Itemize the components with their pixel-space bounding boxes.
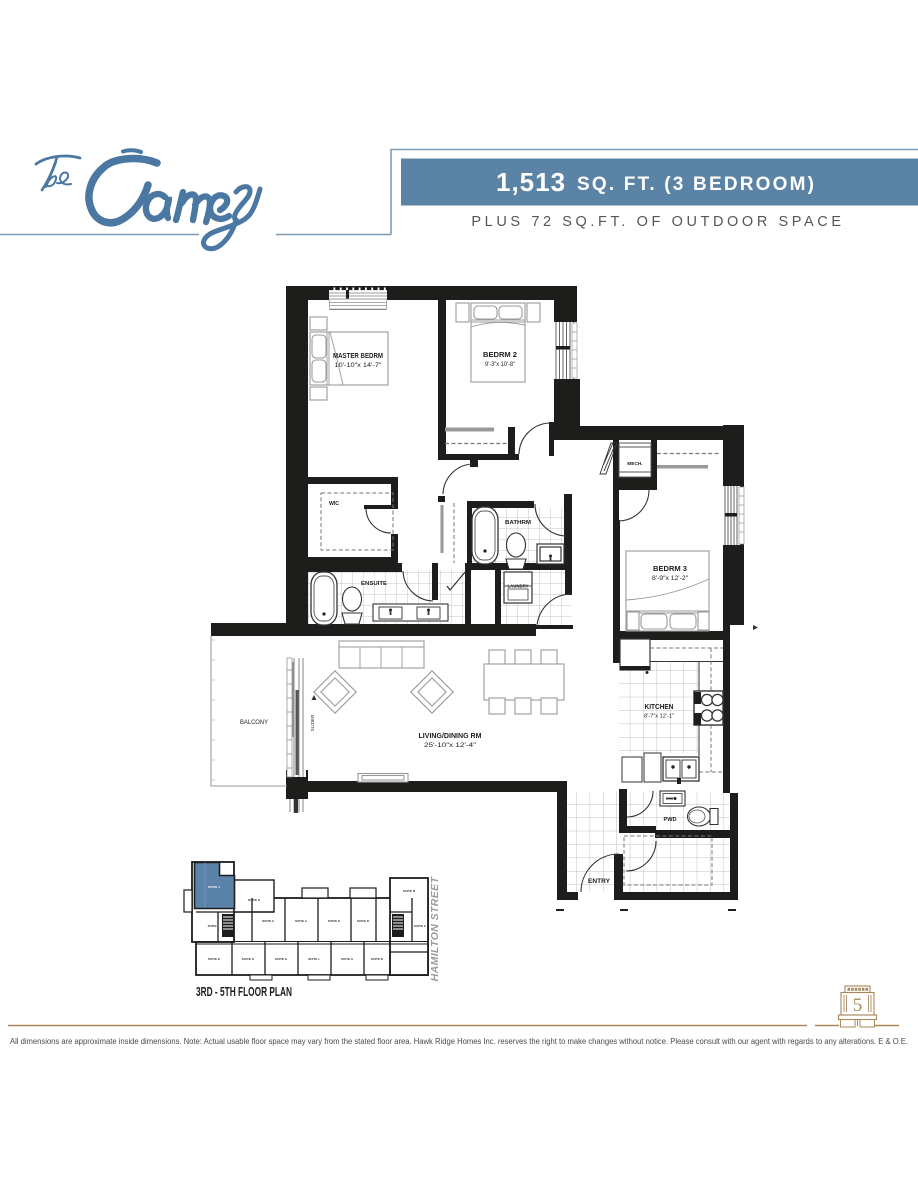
svg-text:SUITE A: SUITE A [262,919,275,923]
svg-text:SLIDER: SLIDER [310,714,315,731]
svg-text:SUITE A: SUITE A [341,957,354,961]
svg-text:SUITE L: SUITE L [308,957,320,961]
svg-text:KITCHEN: KITCHEN [645,704,674,711]
svg-text:SUITE B: SUITE B [403,889,416,893]
svg-text:SUITE A: SUITE A [295,919,308,923]
svg-text:LIVING/DINING RM: LIVING/DINING RM [419,733,482,740]
svg-text:SUITE J: SUITE J [208,885,220,889]
svg-text:SUITE I: SUITE I [208,924,219,928]
svg-text:ENTRY: ENTRY [588,878,611,885]
svg-text:SUITE H: SUITE H [248,898,261,902]
svg-text:All dimensions are approximate: All dimensions are approximate inside di… [10,1037,908,1046]
svg-text:MASTER BEDRM: MASTER BEDRM [333,353,383,360]
svg-text:SUITE G: SUITE G [242,957,255,961]
svg-text:SUITE E: SUITE E [208,957,220,961]
svg-text:SUITE G: SUITE G [275,957,288,961]
svg-text:3RD - 5TH FLOOR PLAN: 3RD - 5TH FLOOR PLAN [196,985,292,999]
svg-text:BALCONY: BALCONY [240,719,268,726]
svg-text:ENSUITE: ENSUITE [361,581,387,587]
svg-text:PWD: PWD [663,817,676,823]
svg-text:WIC: WIC [329,501,339,507]
svg-text:SUITE D: SUITE D [371,957,384,961]
svg-text:1,513: 1,513 [496,167,566,197]
svg-text:8′-7″x 12′-1″: 8′-7″x 12′-1″ [644,714,674,720]
svg-text:25′-10″x 12′-4″: 25′-10″x 12′-4″ [424,742,477,749]
svg-text:BATHRM: BATHRM [505,520,531,526]
svg-text:SUITE K: SUITE K [328,919,341,923]
svg-text:PLUS 72 SQ.FT. OF OUTDOOR SPAC: PLUS 72 SQ.FT. OF OUTDOOR SPACE [471,214,844,230]
svg-text:BEDRM 2: BEDRM 2 [483,352,517,359]
svg-text:5: 5 [853,995,863,1016]
svg-text:10′-10″x 14′-7″: 10′-10″x 14′-7″ [335,362,383,369]
svg-text:SUITE C: SUITE C [414,924,427,928]
svg-text:MECH.: MECH. [627,461,642,467]
svg-text:SQ. FT. (3 BEDROOM): SQ. FT. (3 BEDROOM) [577,174,816,195]
svg-text:9′-3″x 10′-8″: 9′-3″x 10′-8″ [485,361,516,368]
svg-text:SUITE K: SUITE K [357,919,370,923]
svg-text:BEDRM 3: BEDRM 3 [653,566,687,573]
svg-text:8′-9″x 12′-2″: 8′-9″x 12′-2″ [652,575,689,582]
svg-text:LAUNDRY: LAUNDRY [508,584,530,590]
svg-text:HAMILTON STREET: HAMILTON STREET [429,875,441,981]
